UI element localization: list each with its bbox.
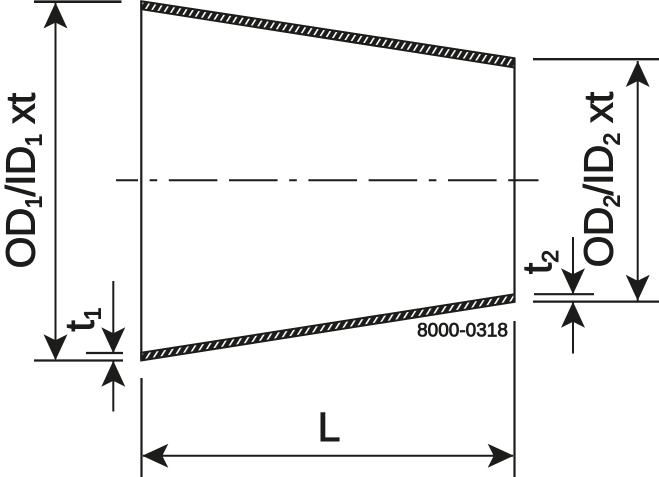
svg-text:L: L bbox=[318, 404, 341, 450]
svg-text:OD1/ID1 xt: OD1/ID1 xt bbox=[0, 92, 46, 268]
svg-text:8000-0318: 8000-0318 bbox=[417, 321, 508, 342]
svg-text:OD2/ID2 xt: OD2/ID2 xt bbox=[576, 91, 625, 267]
